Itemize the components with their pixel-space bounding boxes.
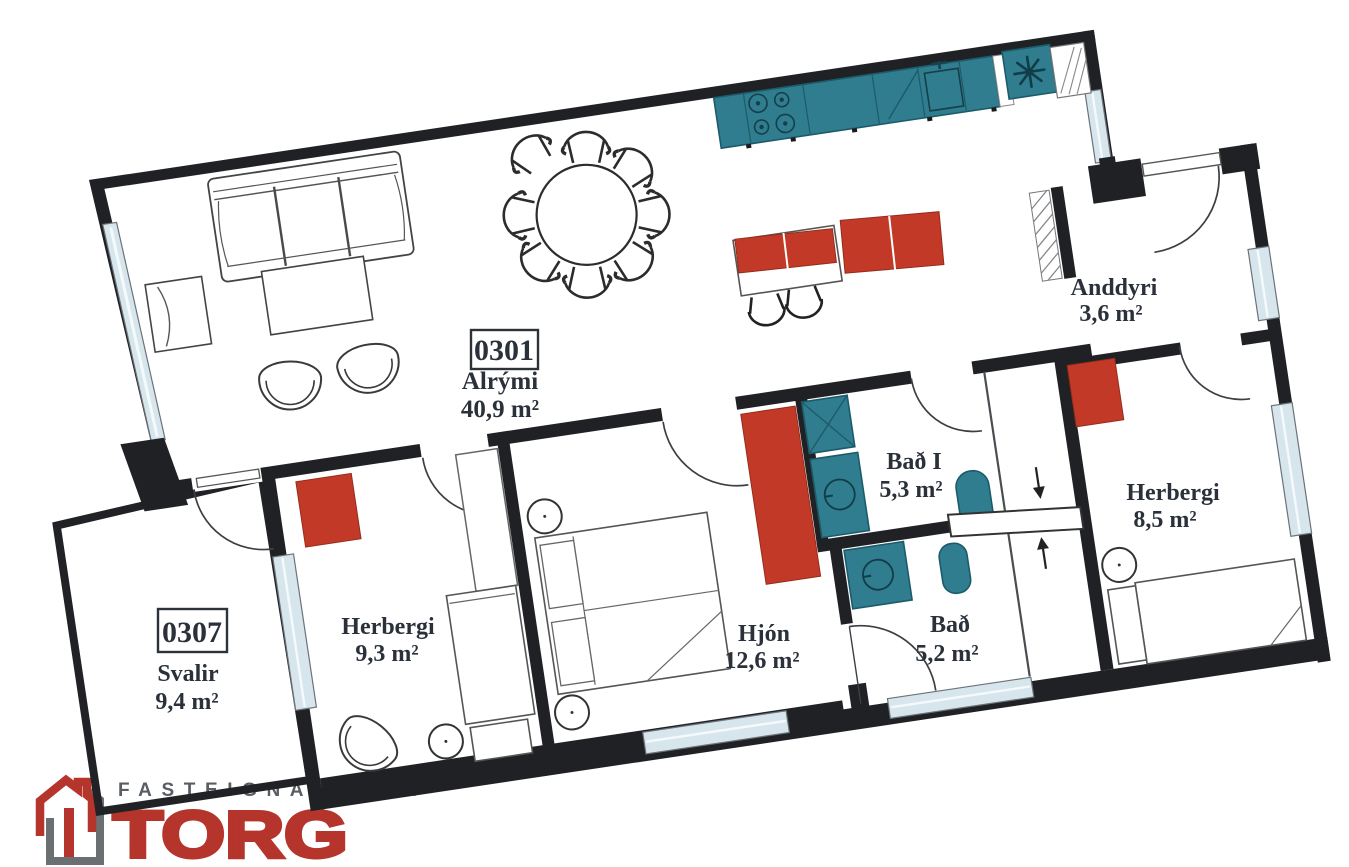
svg-text:5,2 m²: 5,2 m² — [915, 641, 978, 667]
svg-text:3,6 m²: 3,6 m² — [1079, 301, 1142, 327]
svg-text:Svalir: Svalir — [157, 661, 219, 687]
svg-text:Herbergi: Herbergi — [1126, 480, 1220, 506]
svg-text:Hjón: Hjón — [738, 621, 790, 647]
svg-text:40,9 m²: 40,9 m² — [461, 396, 539, 423]
svg-text:9,3 m²: 9,3 m² — [355, 641, 418, 667]
svg-text:Herbergi: Herbergi — [341, 614, 435, 640]
svg-text:Alrými: Alrými — [462, 368, 538, 395]
svg-text:5,3 m²: 5,3 m² — [879, 477, 942, 503]
svg-text:9,4 m²: 9,4 m² — [155, 689, 218, 715]
svg-text:0307: 0307 — [162, 616, 222, 649]
svg-text:Anddyri: Anddyri — [1071, 275, 1158, 301]
svg-text:Bað I: Bað I — [886, 449, 941, 475]
svg-text:Bað: Bað — [930, 612, 970, 638]
svg-text:12,6 m²: 12,6 m² — [724, 648, 799, 674]
svg-text:8,5 m²: 8,5 m² — [1133, 507, 1196, 533]
svg-text:0301: 0301 — [474, 334, 534, 367]
